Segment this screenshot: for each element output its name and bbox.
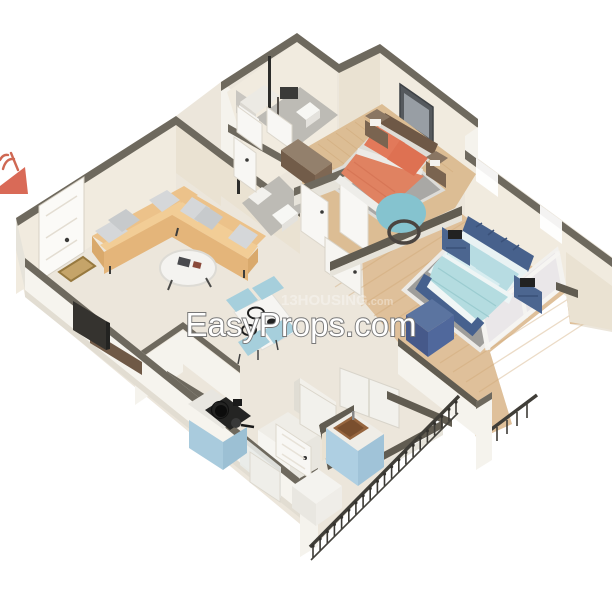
- svg-text:EasyProps.com: EasyProps.com: [185, 306, 416, 343]
